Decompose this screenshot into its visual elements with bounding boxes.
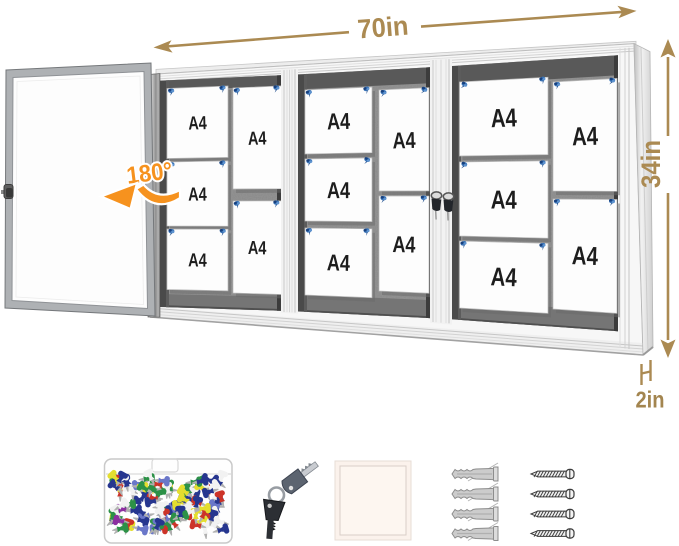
svg-text:A4: A4 bbox=[491, 185, 518, 215]
svg-text:A4: A4 bbox=[188, 113, 207, 135]
svg-text:A4: A4 bbox=[571, 240, 599, 271]
svg-text:A4: A4 bbox=[248, 128, 267, 149]
svg-text:34in: 34in bbox=[636, 140, 666, 188]
svg-text:A4: A4 bbox=[327, 177, 350, 203]
svg-text:A4: A4 bbox=[248, 238, 267, 259]
svg-text:A4: A4 bbox=[490, 261, 518, 292]
svg-text:A4: A4 bbox=[572, 121, 599, 152]
svg-text:A4: A4 bbox=[188, 250, 207, 271]
svg-text:A4: A4 bbox=[392, 127, 416, 154]
svg-text:A4: A4 bbox=[327, 249, 351, 276]
svg-text:70in: 70in bbox=[356, 11, 409, 45]
svg-text:A4: A4 bbox=[392, 231, 416, 258]
svg-text:A4: A4 bbox=[188, 185, 207, 206]
svg-text:A4: A4 bbox=[327, 108, 351, 135]
svg-text:2in: 2in bbox=[636, 387, 665, 413]
svg-text:A4: A4 bbox=[490, 102, 517, 133]
